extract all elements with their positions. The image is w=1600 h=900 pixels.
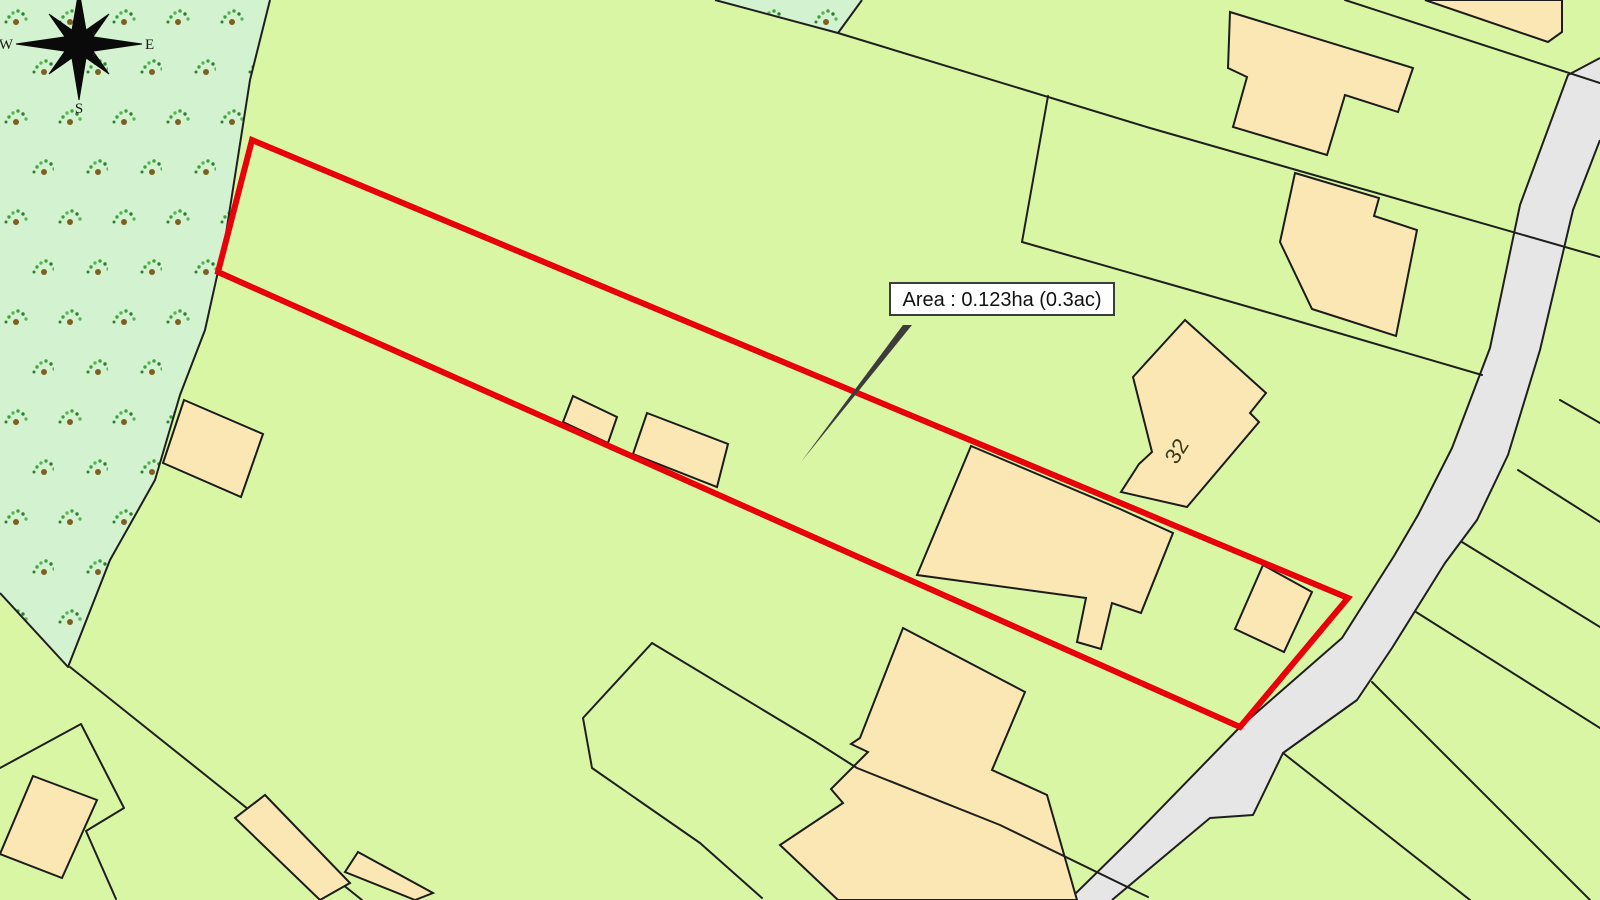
area-label-text: Area : 0.123ha (0.3ac) — [902, 289, 1101, 311]
compass-west-label: W — [0, 37, 14, 53]
site-plan-map: 32 Area : 0.123ha (0.3ac) W E S — [0, 0, 1600, 900]
site-plan-canvas: 32 Area : 0.123ha (0.3ac) W E S — [0, 0, 1600, 900]
compass-south-label: S — [75, 101, 83, 117]
compass-east-label: E — [145, 37, 154, 53]
